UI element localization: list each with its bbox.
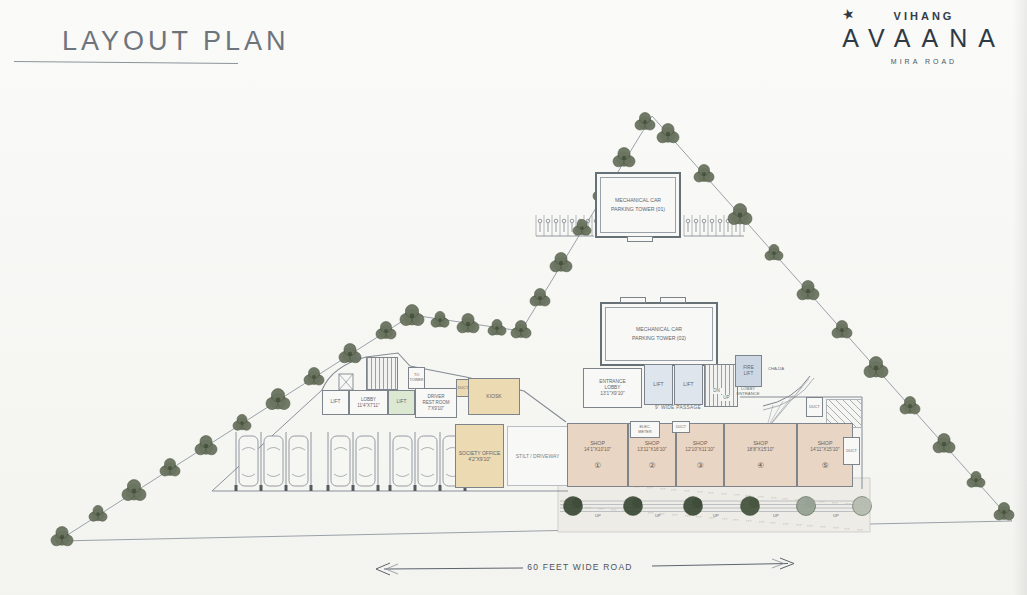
room-driver-rest-room: DRIVER REST ROOM 7'X9'10" <box>415 388 457 418</box>
shop-number: ③ <box>697 461 704 471</box>
room-society-office: SOCIETY OFFICE 4'2"X9'10" <box>455 424 504 488</box>
tower-2-label: MECHANICAL CAR PARKING TOWER (02) <box>632 325 686 343</box>
room-lift: LIFT <box>388 390 415 415</box>
shop-number: ④ <box>757 461 764 471</box>
steps-up-label: UP <box>708 513 724 518</box>
room-duct: DUCT <box>672 421 690 433</box>
room-duct: DUCT <box>806 397 823 417</box>
lobby-entrance-label: LOBBY ENTRANCE <box>728 386 768 397</box>
brand-name: VIHANG <box>828 10 1020 22</box>
shop-number: ⑤ <box>822 461 829 471</box>
layout-plan-page: LAYOUT PLAN ★ VIHANG AVAANA MIRA ROAD ME… <box>0 0 1027 595</box>
steps-up-label: UP <box>650 513 666 518</box>
shop-name: SHOP <box>818 440 833 447</box>
room-duct: DUCT <box>843 437 860 465</box>
tower-tab <box>620 297 646 303</box>
road-label: 60 FEET WIDE ROAD <box>495 562 665 573</box>
brand-logo: ★ VIHANG AVAANA MIRA ROAD <box>828 4 1020 65</box>
tower-tab <box>627 236 653 242</box>
shop-dim: 14'1"X10'10" <box>584 447 611 453</box>
chajja-label: CHAJJA <box>762 366 790 371</box>
shop-dim: 12'10"X11'10" <box>685 447 714 453</box>
up-label: UP <box>352 357 364 363</box>
shop-name: SHOP <box>693 440 708 447</box>
steps-up-label: UP <box>828 513 844 518</box>
project-name: AVAANA <box>828 24 1020 53</box>
shop-4: SHOP 18'8"X15'10" ④ <box>724 423 797 487</box>
room-entrance-lobby: ENTRANCE LOBBY 13'1"X9'10" <box>583 368 642 408</box>
dn-label: DN <box>710 388 723 394</box>
shop-name: SHOP <box>590 440 605 447</box>
scan-edge-shadow <box>1013 0 1027 595</box>
room-fire-lift: FIRE LIFT <box>735 355 762 387</box>
room-lift: LIFT <box>644 364 673 405</box>
tower-tab <box>660 297 686 303</box>
room-lift: LIFT <box>674 364 703 405</box>
project-location: MIRA ROAD <box>828 58 1020 65</box>
room-lobby-left: LOBBY 11'4"X7'11" <box>349 390 388 415</box>
shop-dim: 13'11"X16'10" <box>637 447 666 453</box>
tower-1-label: MECHANICAL CAR PARKING TOWER (01) <box>611 196 665 214</box>
steps-up-label: UP <box>768 513 784 518</box>
shop-name: SHOP <box>753 440 768 447</box>
shop-1: SHOP 14'1"X10'10" ① <box>567 423 628 487</box>
site-plan-drawing <box>0 0 1027 595</box>
staircase-left <box>366 357 398 390</box>
room-kiosk: KIOSK <box>468 378 520 415</box>
steps-up-label: UP <box>590 513 606 518</box>
shop-dim: 18'8"X15'10" <box>747 447 774 453</box>
star-icon: ★ <box>840 5 856 24</box>
room-mech-parking-tower-2: MECHANICAL CAR PARKING TOWER (02) <box>600 302 718 366</box>
room-elec-meter: ELEC. METER <box>630 421 660 438</box>
room-lift: LIFT <box>322 390 349 415</box>
passage-label: 9' WIDE PASSAGE <box>630 405 726 411</box>
shop-dim: 14'11"X15'10" <box>810 447 839 453</box>
room-mech-parking-tower-1: MECHANICAL CAR PARKING TOWER (01) <box>595 172 681 238</box>
shop-name: SHOP <box>645 440 660 447</box>
room-to-tower: TO TOWER <box>408 367 425 389</box>
shop-number: ① <box>594 461 601 471</box>
page-title: LAYOUT PLAN <box>62 26 290 57</box>
room-stilt-driveway: STILT / DRIVEWAY <box>507 426 568 486</box>
shop-number: ② <box>649 461 656 471</box>
